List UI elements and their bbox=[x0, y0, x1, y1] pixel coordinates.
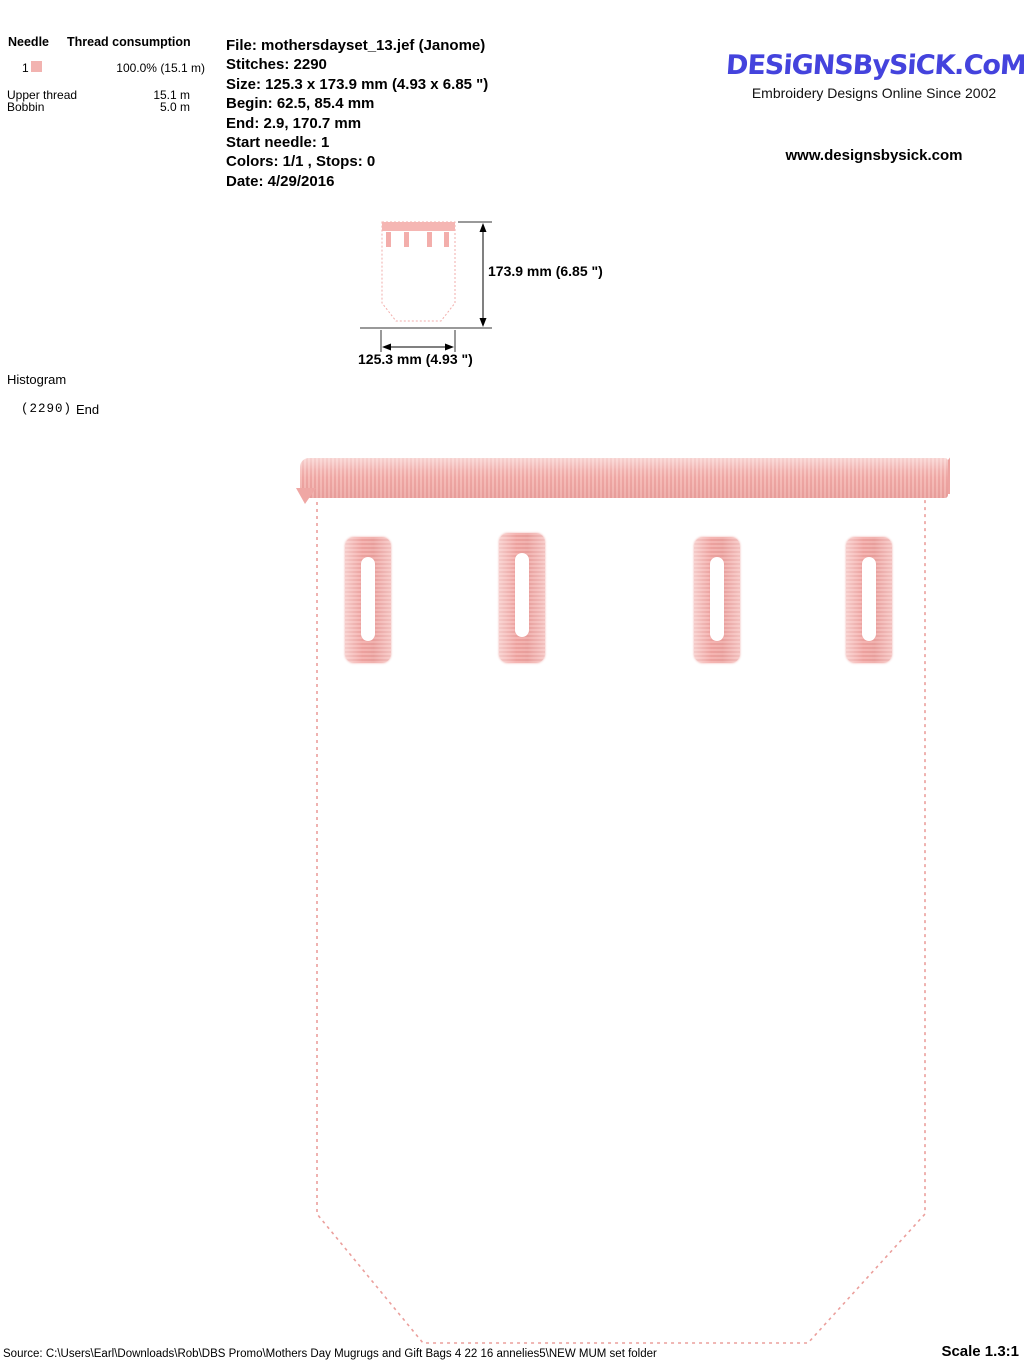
source-path: Source: C:\Users\Earl\Downloads\Rob\DBS … bbox=[3, 1348, 657, 1360]
scale-label: Scale 1.3:1 bbox=[941, 1343, 1019, 1360]
buttonhole-slot-4 bbox=[846, 537, 892, 663]
stitch-outline bbox=[0, 0, 1024, 1370]
bag-outline-path bbox=[317, 495, 925, 1343]
top-band-satin bbox=[300, 458, 948, 498]
buttonhole-slot-2 bbox=[499, 533, 545, 663]
buttonhole-slot-3 bbox=[694, 537, 740, 663]
buttonhole-slot-1 bbox=[345, 537, 391, 663]
